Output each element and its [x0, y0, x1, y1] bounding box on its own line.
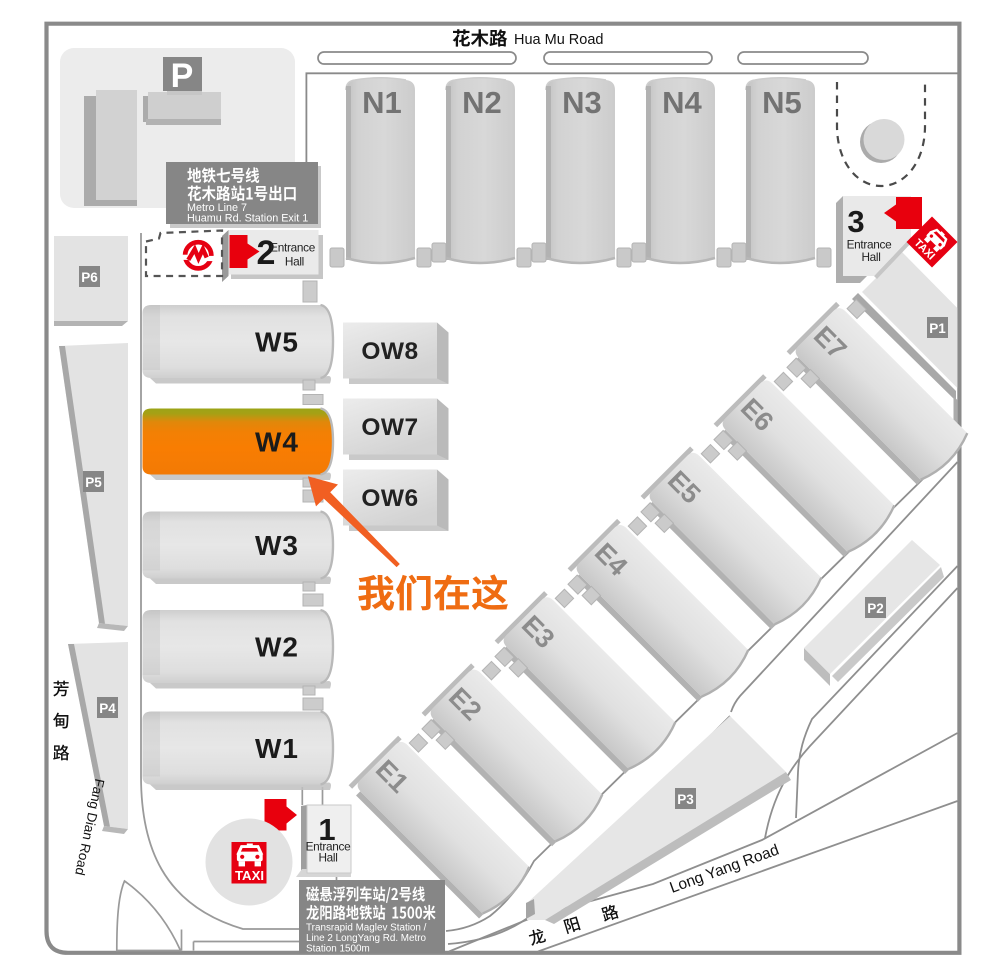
svg-text:Hall: Hall [285, 255, 304, 269]
svg-text:OW8: OW8 [361, 338, 418, 365]
svg-text:W5: W5 [255, 327, 299, 358]
svg-text:Hall: Hall [861, 250, 880, 264]
svg-text:OW7: OW7 [361, 414, 418, 441]
svg-text:Hua Mu Road: Hua Mu Road [514, 32, 603, 48]
svg-text:N4: N4 [662, 85, 702, 120]
svg-text:P1: P1 [929, 321, 946, 336]
svg-text:P4: P4 [99, 701, 116, 716]
svg-text:W1: W1 [255, 733, 299, 764]
svg-text:P5: P5 [85, 475, 102, 490]
svg-text:N5: N5 [762, 85, 802, 120]
svg-text:W2: W2 [255, 632, 299, 663]
svg-text:Huamu Rd. Station Exit 1: Huamu Rd. Station Exit 1 [187, 213, 308, 225]
svg-text:TAXI: TAXI [235, 868, 264, 883]
svg-text:P6: P6 [81, 270, 98, 285]
svg-text:P2: P2 [867, 601, 884, 616]
svg-text:P: P [171, 57, 194, 95]
svg-text:Hall: Hall [318, 851, 337, 865]
svg-text:N2: N2 [462, 85, 502, 120]
svg-text:N1: N1 [362, 85, 402, 120]
svg-text:Entrance: Entrance [270, 241, 316, 255]
svg-text:W4: W4 [255, 427, 299, 458]
svg-text:Transrapid Maglev Station /: Transrapid Maglev Station / [306, 923, 427, 934]
svg-text:Station 1500m: Station 1500m [306, 944, 370, 955]
svg-text:3: 3 [847, 204, 864, 239]
svg-text:W3: W3 [255, 530, 299, 561]
svg-text:Line 2 LongYang Rd. Metro: Line 2 LongYang Rd. Metro [306, 933, 427, 944]
svg-text:N3: N3 [562, 85, 602, 120]
svg-text:OW6: OW6 [361, 485, 418, 512]
svg-text:P3: P3 [677, 792, 694, 807]
